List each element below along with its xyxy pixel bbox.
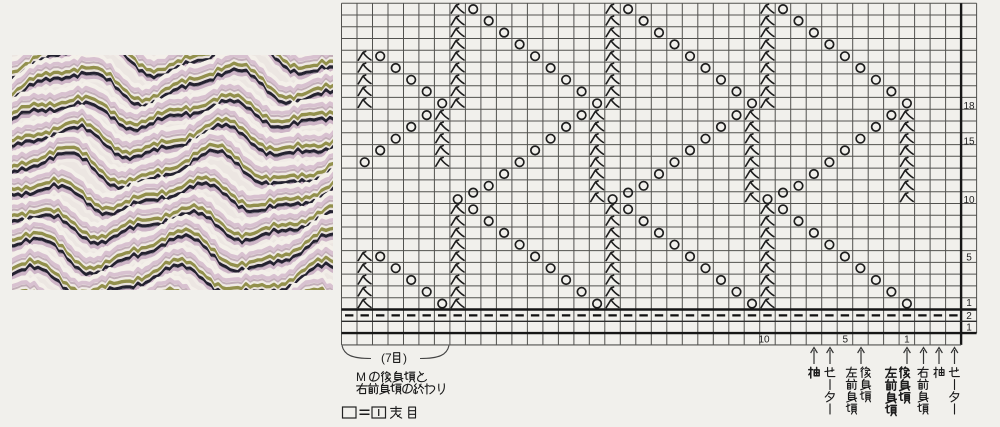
svg-text:1: 1 [904, 334, 910, 345]
svg-text:1: 1 [966, 298, 972, 309]
svg-text:10: 10 [963, 195, 975, 206]
svg-text:10: 10 [758, 334, 770, 345]
svg-text:(7: (7 [381, 351, 392, 365]
svg-text:1: 1 [966, 323, 972, 334]
svg-text:18: 18 [963, 101, 975, 112]
svg-text:2: 2 [966, 311, 972, 322]
svg-text:15: 15 [963, 136, 975, 147]
svg-text:): ) [403, 351, 407, 365]
svg-text:5: 5 [966, 252, 972, 263]
svg-text:M: M [356, 370, 366, 384]
svg-text:5: 5 [843, 334, 849, 345]
